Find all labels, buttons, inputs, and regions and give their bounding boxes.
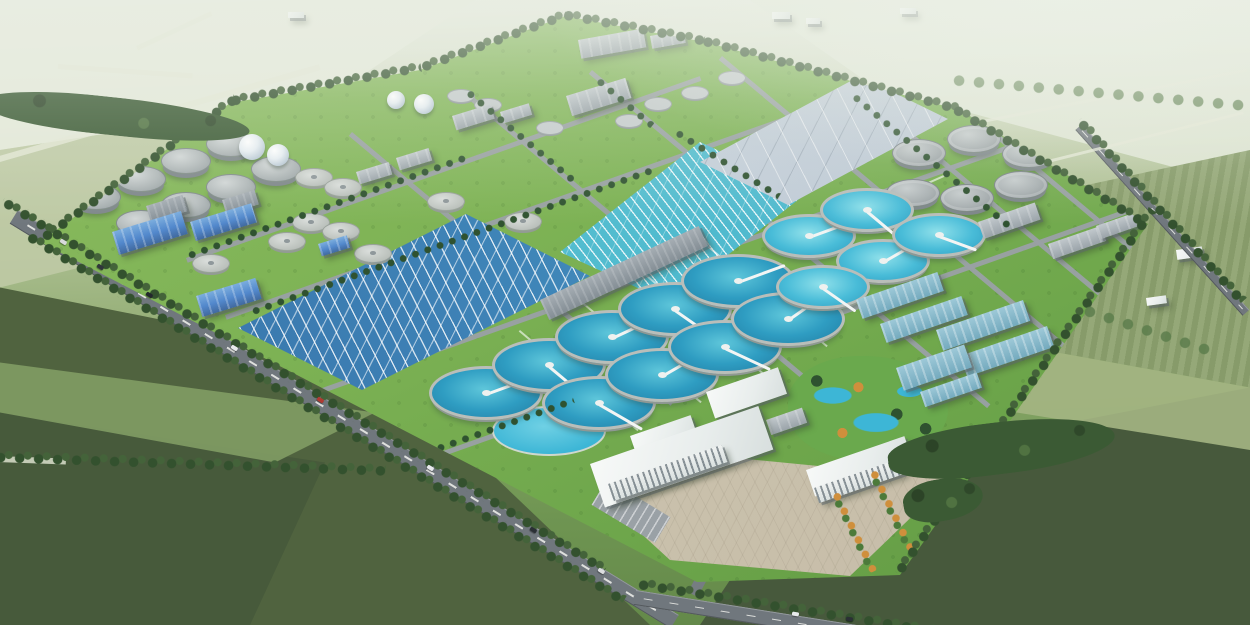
vehicle bbox=[231, 344, 239, 351]
vehicle bbox=[97, 263, 105, 270]
vehicle bbox=[792, 611, 799, 616]
vehicle bbox=[317, 396, 325, 403]
vehicle bbox=[60, 238, 68, 245]
wastewater-plant-aerial-rendering bbox=[0, 0, 1250, 625]
vehicle bbox=[530, 526, 538, 533]
vehicle bbox=[598, 567, 606, 574]
vehicle bbox=[846, 616, 853, 621]
vehicle bbox=[146, 291, 154, 298]
vehicle bbox=[427, 464, 435, 471]
vehicles-layer bbox=[0, 0, 1250, 625]
